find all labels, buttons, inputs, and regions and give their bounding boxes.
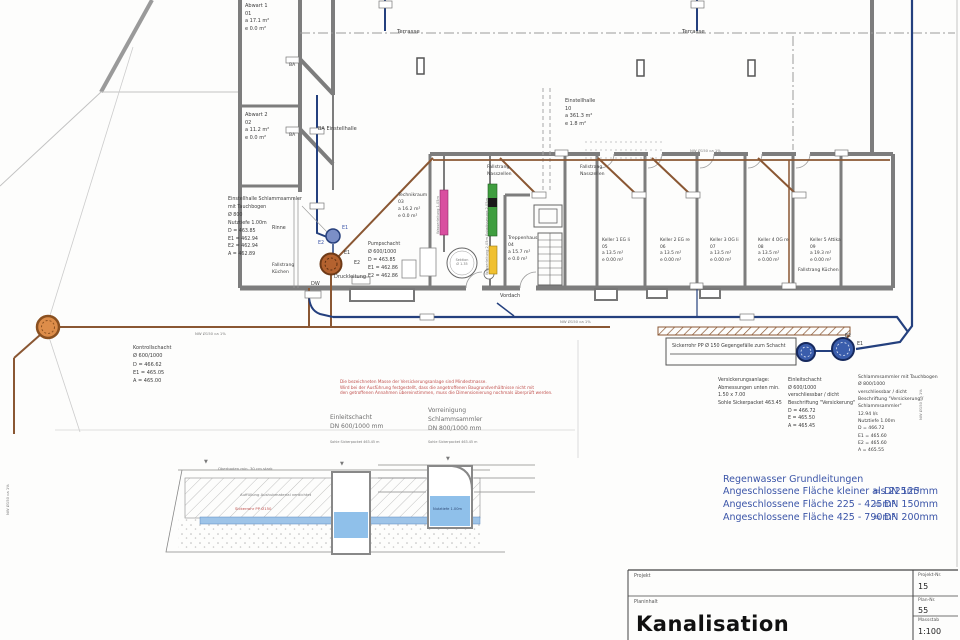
annotation-schlammsammler: Schlammsammler mit TauchbogenØ 800/1000v…: [858, 374, 938, 455]
sickerleitung-band: [658, 327, 850, 335]
room-label-abwart1: Abwart 101a 17.1 m²e 0.0 m²: [245, 3, 269, 33]
pipe-label-nw-2: NW Ø150 ca 1%: [560, 319, 591, 325]
legend-row-3-dn: = DN 200mm: [873, 511, 938, 524]
room-label-technikraum: Technikraum03a 16.2 m²e 0.0 m²: [398, 193, 427, 221]
vordach-label: Vordach: [500, 293, 520, 301]
titleblock-plan-title: Kanalisation: [636, 609, 789, 640]
dw-label: DW: [311, 281, 320, 289]
titleblock-projektnr-value: 15: [918, 581, 928, 593]
keller-doors: [466, 150, 810, 292]
fallstrang-kuechen-label-right: Fallstrang Küchen: [798, 268, 839, 275]
room-label-keller2: Keller 2 EG re06a 13.5 m²e 0.00 m²: [660, 238, 690, 264]
annotation-versickerungsanlage: Versickerungsanlage:Abmessungen unten mi…: [718, 377, 782, 408]
detail-right-title: VorreinigungSchlammsammlerDN 800/1000 mm: [428, 406, 482, 433]
detail-left-title: EinleitschachtDN 600/1000 mm: [330, 413, 383, 431]
detail-nutztiefe-label: Nutztiefe 1.00m: [433, 507, 462, 512]
annotation-leader: [302, 206, 327, 232]
e2-marker-pump: E2: [354, 260, 360, 267]
fallstrang-kuechen-label-left: FallstrangKüchen: [272, 263, 294, 277]
detail-oberboden-label: Oberboden min. 30 cm stark: [218, 466, 273, 472]
room-label-abwart2: Abwart 202a 11.2 m²e 0.0 m²: [245, 112, 269, 142]
terrasse-label-left: Terrasse: [397, 28, 420, 36]
level-marker-3: ▼: [446, 456, 450, 464]
room-label-keller3: Keller 3 OG li07a 13.5 m²e 0.00 m²: [710, 238, 739, 264]
titleblock-plannr-label: Plan-Nr.: [918, 598, 935, 605]
legend-row-2-area: Angeschlossene Fläche 225 - 425m³: [723, 498, 869, 511]
titleblock-projektnr-label: Projekt-Nr.: [918, 573, 941, 580]
e1-marker-pump: E1: [344, 250, 350, 257]
schlammsammler-manhole: [832, 338, 854, 360]
ba-label-2: BA: [289, 133, 295, 140]
detail-left-sub: Sohle Sickerpacket 463.45 m: [330, 440, 379, 445]
fallstrang-nasszellen-label-1: FallstrangNasszellen: [487, 165, 512, 179]
fixtures: [402, 248, 494, 279]
annotation-pumpschacht: PumpschachtØ 600/1000D = 463.85E1 = 462.…: [368, 241, 400, 281]
annotation-kontrollschacht: KontrollschachtØ 600/1000D = 466.62E1 = …: [133, 344, 171, 385]
kontrollschacht-manhole: [37, 316, 59, 338]
pumpschacht-manhole: [321, 254, 342, 275]
pipe-label-nw-3: NW Ø150 ca 1%: [690, 148, 721, 154]
e2-marker-blue: E2: [318, 240, 324, 247]
room-label-treppenhaus: Treppenhaus04a 15.7 m²e 0.0 m²: [508, 236, 537, 264]
terrasse-boundary-lines: [300, 33, 955, 192]
room-label-keller5: Keller 5 Attika09a 19.3 m²e 0.00 m²: [810, 238, 841, 264]
legend-row-2-dn: = DN 150mm: [873, 498, 938, 511]
detail-auffuellung-label: Auffüllung Aushubmaterial verdichtet: [240, 492, 311, 498]
level-marker-2: ▼: [340, 461, 344, 469]
fallstrang-nasszellen-label-3: FallstrangNasszellen: [580, 165, 605, 179]
legend-row-1-area: Angeschlossene Fläche kleiner als 225m³: [723, 485, 869, 498]
titleblock-plannr-value: 55: [918, 605, 928, 617]
e1-marker-blue: E1: [342, 225, 348, 232]
kanalisation-plan-sheet: Abwart 101a 17.1 m²e 0.0 m² Abwart 202a …: [0, 0, 960, 640]
legend-row-1-dn: = DN 125mm: [873, 485, 938, 498]
level-marker-1: ▼: [204, 459, 208, 467]
regenwasser-legend: Regenwasser Grundleitungen Angeschlossen…: [723, 474, 938, 524]
riser-caption-green: Entwässerung 2.05m: [485, 198, 490, 236]
room-label-keller1: Keller 1 EG li05a 13.5 m²e 0.00 m²: [602, 238, 630, 264]
detail-sickerrohr-label: Sickerrohr PP Ø150: [235, 506, 271, 512]
pillars: [417, 58, 755, 76]
room-label-keller4: Keller 4 OG re08a 13.5 m²e 0.00 m²: [758, 238, 789, 264]
room-label-ba-einstellhalle: BA Einstellhalle: [318, 126, 357, 134]
pipe-label-nw-vertical: NW Ø150 ca 1%: [918, 389, 924, 420]
pipe-label-nw-left-vertical: NW Ø150 ca 1%: [5, 484, 11, 515]
e2-marker-right: E2: [845, 333, 851, 340]
riser-caption-yellow: Wasserleitung 2.05m: [485, 237, 490, 275]
e1-marker-right: E1: [857, 341, 863, 348]
annotation-sickerrohr: Sickerrohr PP Ø 150 Gegengefälle zum Sch…: [672, 343, 786, 350]
annotation-einstellhalle-schlammsammler: Einstellhalle Schlammsammlermit Tauchbog…: [228, 196, 302, 259]
terrasse-label-right: Terrasse: [682, 28, 705, 36]
annotation-einleitschacht: EinleitschachtØ 600/1000verschliessbar /…: [788, 377, 855, 431]
plan-linework: [0, 0, 960, 640]
ba-label-1: BA: [289, 63, 295, 70]
einstellhalle-schlammsammler-manhole: [326, 229, 340, 243]
titleblock-projekt-label: Projekt: [634, 573, 651, 580]
druckleitung-label: Druckleitung: [334, 274, 366, 282]
detail-right-sub: Sohle Sickerpacket 463.45 m: [428, 440, 477, 445]
titleblock-massstab-label: Massstab: [918, 618, 939, 625]
titleblock-planinhalt-label: Planinhalt: [634, 599, 658, 606]
legend-row-3-area: Angeschlossene Fläche 425 - 790m³: [723, 511, 869, 524]
stair-elevator: [534, 205, 562, 285]
legend-title: Regenwasser Grundleitungen: [723, 474, 938, 485]
room-label-einstellhalle: Einstellhalle10a 361.3 m²e 1.8 m²: [565, 98, 595, 128]
building-walls: [240, 0, 893, 288]
einleitschacht-manhole: [797, 343, 815, 361]
riser-caption-pink: Wasserleitung 1.05m: [436, 196, 441, 234]
sektion-circle-label: SektionØ 1.35: [452, 258, 472, 267]
red-note: Die bezeichneten Masse der Versickerungs…: [340, 379, 553, 396]
titleblock-massstab-value: 1:100: [918, 626, 941, 638]
pipe-label-nw-1: NW Ø150 ca 1%: [195, 331, 226, 337]
